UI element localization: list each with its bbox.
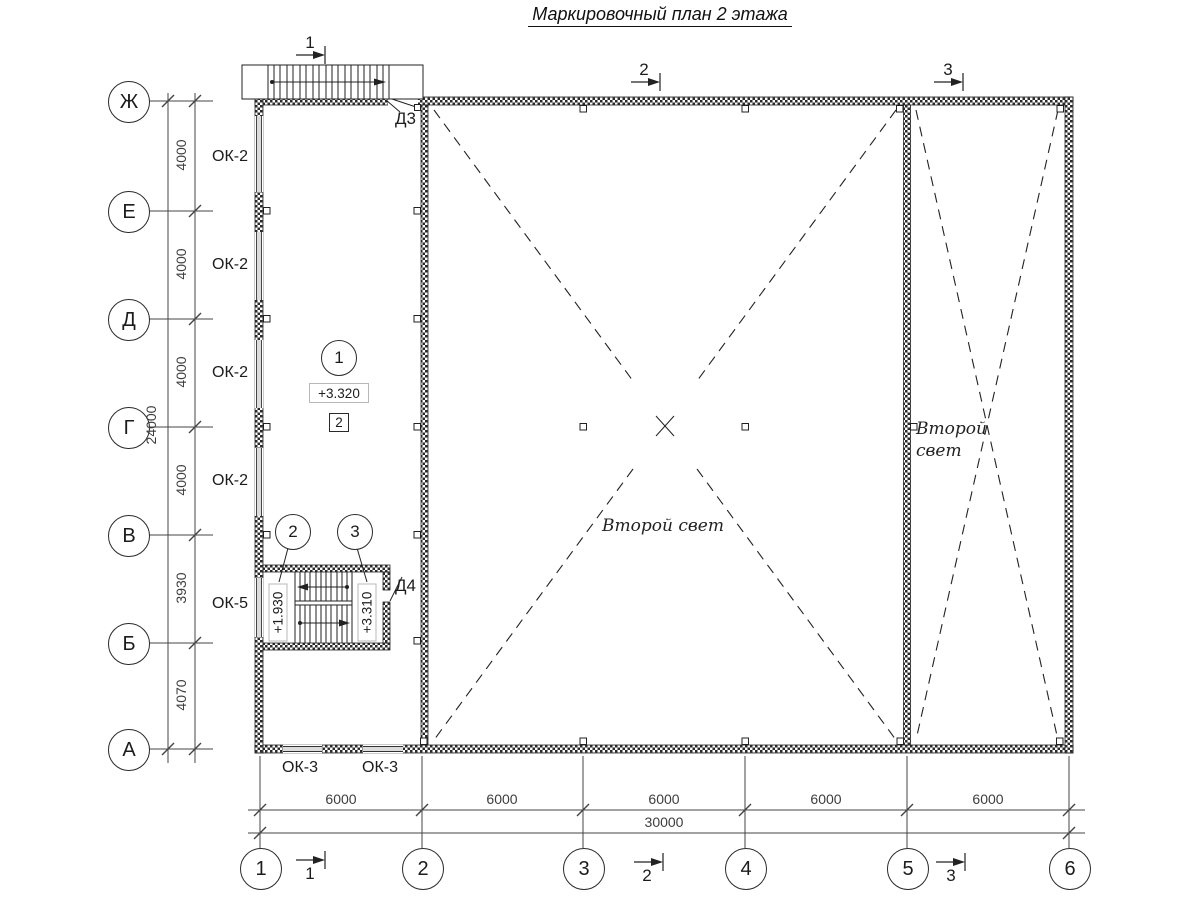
axis-row-b: Б <box>108 623 150 665</box>
window-mark-ok2-1: ОК-2 <box>200 148 260 166</box>
page-title: Маркировочный план 2 этажа <box>450 4 870 25</box>
door-mark-d4: Д4 <box>395 576 416 596</box>
floor-plan-sheet: Маркировочный план 2 этажа Ж Е Д Г В Б А… <box>0 0 1200 900</box>
axis-col-6: 6 <box>1049 848 1091 890</box>
dim-zh-e: 4000 <box>173 125 189 185</box>
dim-vertical-total: 24000 <box>143 385 159 465</box>
dim-4-5: 6000 <box>796 791 856 807</box>
second-light-label-right-line2: свет <box>916 441 962 461</box>
level-mark-stair-top: +3.310 <box>358 584 377 642</box>
stairwell <box>295 572 352 643</box>
axis-col-3: 3 <box>563 848 605 890</box>
axis-col-1: 1 <box>240 848 282 890</box>
section-mark-2-bottom: 2 <box>636 866 658 886</box>
dim-e-d: 4000 <box>173 234 189 294</box>
callout-node-2: 2 <box>275 514 311 550</box>
axis-row-d: Д <box>108 299 150 341</box>
axis-row-zh: Ж <box>108 81 150 123</box>
dim-v-b: 3930 <box>173 558 189 618</box>
axis-row-e: Е <box>108 191 150 233</box>
external-stair <box>242 65 423 99</box>
callout-node-1: 1 <box>321 340 357 376</box>
dim-1-2: 6000 <box>311 791 371 807</box>
dim-g-v: 4000 <box>173 450 189 510</box>
section-mark-2-top: 2 <box>633 60 655 80</box>
center-cross-mark <box>656 416 674 436</box>
callout-node-3: 3 <box>337 514 373 550</box>
axis-row-a: А <box>108 729 150 771</box>
dim-b-a: 4070 <box>173 665 189 725</box>
axis-col-5: 5 <box>887 848 929 890</box>
level-mark-landing: +1.930 <box>269 584 288 642</box>
window-mark-ok2-3: ОК-2 <box>200 364 260 382</box>
section-mark-1-top: 1 <box>299 33 321 53</box>
window-mark-ok2-2: ОК-2 <box>200 256 260 274</box>
dim-5-6: 6000 <box>958 791 1018 807</box>
dim-2-3: 6000 <box>472 791 532 807</box>
dim-3-4: 6000 <box>634 791 694 807</box>
dim-d-g: 4000 <box>173 342 189 402</box>
window-mark-ok3-2: ОК-3 <box>350 759 410 777</box>
window-mark-ok5: ОК-5 <box>200 595 260 613</box>
window-mark-ok3-1: ОК-3 <box>270 759 330 777</box>
axis-col-2: 2 <box>402 848 444 890</box>
second-light-diagonals-center <box>434 110 896 740</box>
level-mark-floor: +3.320 <box>309 383 369 403</box>
section-mark-3-bottom: 3 <box>940 866 962 886</box>
axis-col-4: 4 <box>725 848 767 890</box>
window-mark-ok2-4: ОК-2 <box>200 472 260 490</box>
second-light-label-center: Второй свет <box>593 516 733 536</box>
section-mark-3-top: 3 <box>937 60 959 80</box>
door-mark-d3: Д3 <box>395 109 416 129</box>
second-light-label-right-line1: Второй <box>916 419 987 439</box>
section-mark-1-bottom: 1 <box>299 864 321 884</box>
detail-box-2: 2 <box>329 413 349 432</box>
dim-horizontal-total: 30000 <box>624 814 704 830</box>
axis-row-v: В <box>108 515 150 557</box>
